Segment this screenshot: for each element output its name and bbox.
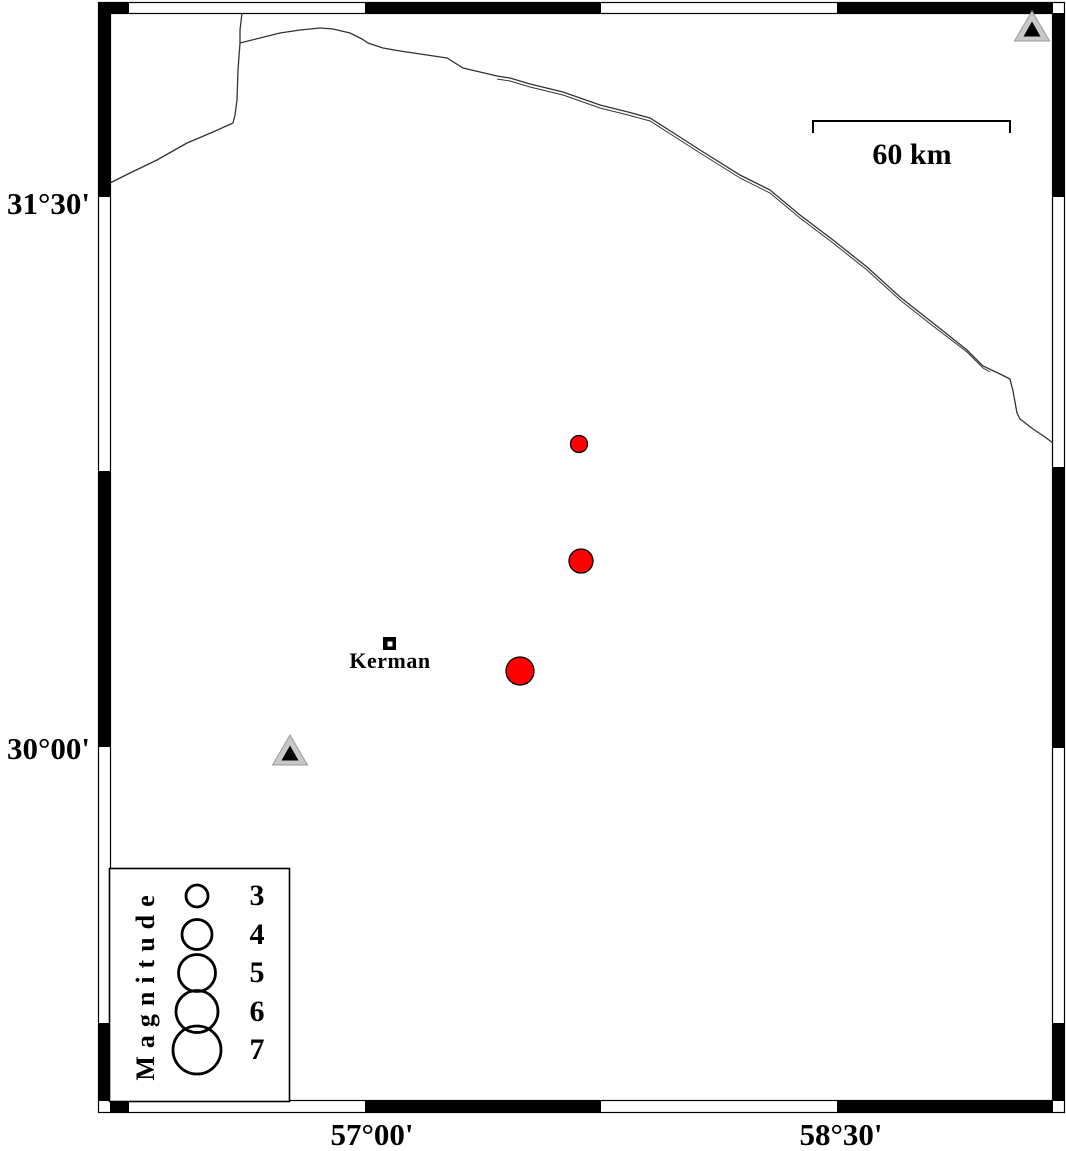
legend-magnitude-value: 4 bbox=[233, 920, 281, 950]
legend-title: Magnitude bbox=[133, 887, 159, 1080]
frame-segment bbox=[98, 2, 110, 197]
border-line-main bbox=[240, 28, 1053, 443]
border-lines bbox=[110, 13, 1053, 443]
city-label-kerman: Kerman bbox=[320, 650, 460, 672]
seismicity-map-figure: 31°30' 30°00' 57°00' 58°30' 60 km Kerman… bbox=[0, 0, 1066, 1151]
border-line-west-branch bbox=[110, 123, 233, 183]
earthquake-layer bbox=[506, 436, 593, 686]
lat-tick-label-30-00: 30°00' bbox=[0, 733, 90, 764]
frame-segment bbox=[837, 1101, 1053, 1113]
frame-segment bbox=[1053, 1023, 1065, 1101]
legend-magnitude-value: 5 bbox=[233, 958, 281, 988]
earthquake-marker bbox=[571, 436, 588, 453]
border-line-main-parallel bbox=[497, 79, 990, 372]
frame-segment bbox=[110, 1101, 129, 1113]
scale-bar-label: 60 km bbox=[832, 140, 992, 170]
earthquake-marker bbox=[569, 549, 593, 573]
frame-segment bbox=[1053, 13, 1065, 197]
lon-tick-label-58-30: 58°30' bbox=[761, 1119, 921, 1150]
city-square-hole bbox=[388, 642, 393, 647]
scale-bar bbox=[813, 121, 1010, 133]
lat-tick-label-31-30: 31°30' bbox=[0, 188, 90, 219]
legend-magnitude-value: 7 bbox=[233, 1035, 281, 1065]
frame-segment bbox=[98, 471, 110, 747]
legend-magnitude-value: 6 bbox=[233, 997, 281, 1027]
frame-segment bbox=[98, 1023, 110, 1101]
frame-segment bbox=[365, 1101, 601, 1113]
legend-magnitude-value: 3 bbox=[233, 881, 281, 911]
earthquake-marker bbox=[506, 657, 534, 685]
frame-segment bbox=[365, 2, 601, 14]
frame-segment bbox=[1053, 467, 1065, 748]
lon-tick-label-57-00: 57°00' bbox=[292, 1119, 452, 1150]
frame-segment bbox=[837, 2, 1053, 14]
border-line-north-branch bbox=[233, 13, 242, 123]
